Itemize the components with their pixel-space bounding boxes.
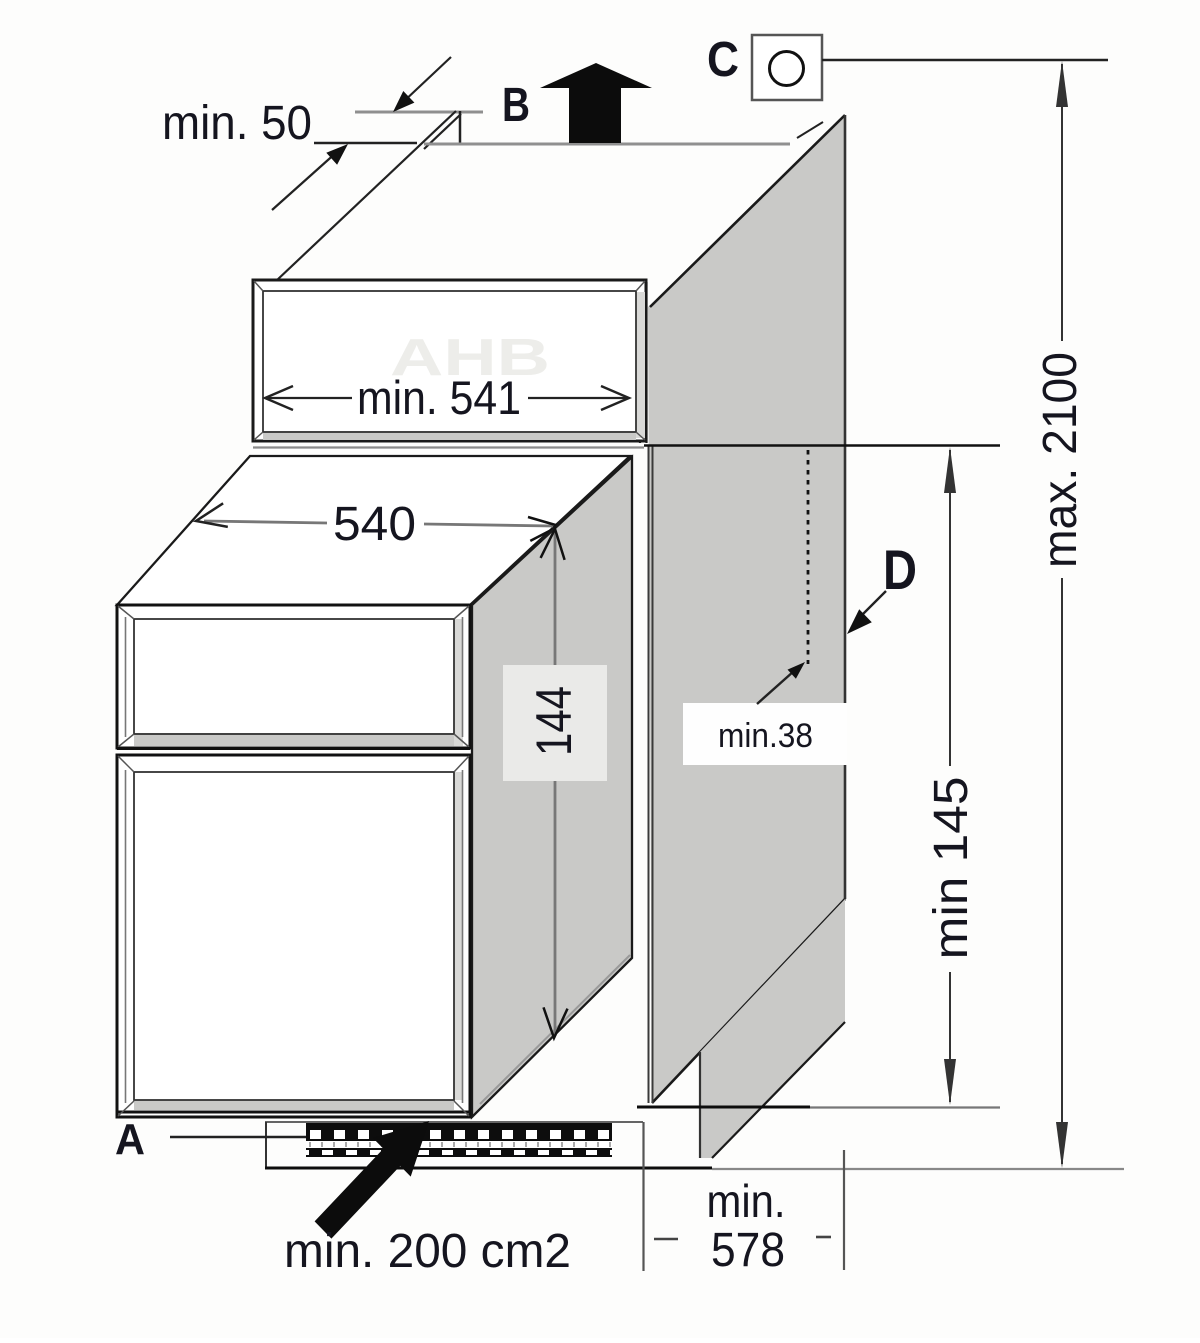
svg-text:min. 200 cm2: min. 200 cm2: [284, 1225, 571, 1278]
svg-text:540: 540: [333, 498, 416, 551]
svg-text:D: D: [883, 538, 917, 601]
svg-text:144: 144: [526, 686, 582, 756]
svg-text:min. 541: min. 541: [357, 371, 521, 424]
svg-text:min. 50: min. 50: [162, 97, 312, 150]
svg-text:C: C: [707, 33, 739, 87]
svg-text:min.: min.: [707, 1175, 786, 1227]
svg-text:max. 2100: max. 2100: [1034, 352, 1087, 568]
svg-text:B: B: [502, 79, 530, 132]
svg-text:min 145: min 145: [925, 777, 978, 960]
svg-text:578: 578: [711, 1224, 785, 1277]
svg-text:A: A: [115, 1115, 145, 1164]
svg-text:min.38: min.38: [718, 717, 813, 755]
